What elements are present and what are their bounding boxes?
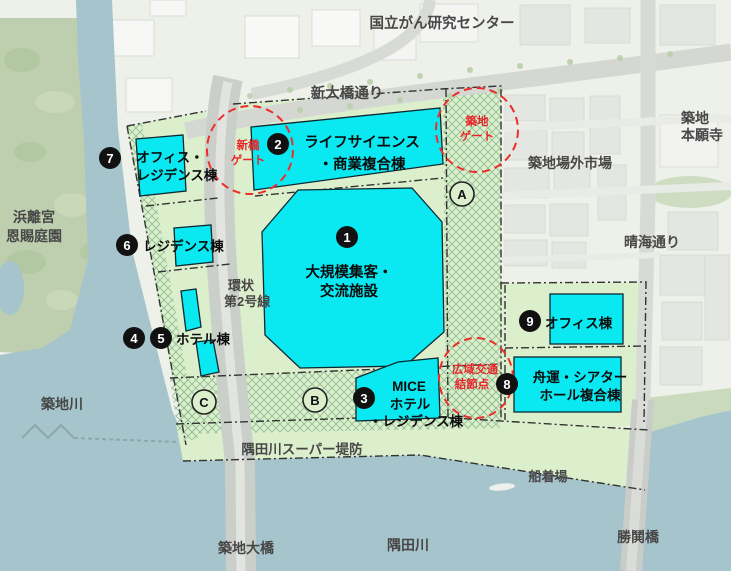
svg-text:2: 2: [274, 137, 281, 152]
label-honganji-1: 築地: [680, 110, 709, 126]
marker-5: 5: [150, 327, 172, 349]
building-45-label: ホテル棟: [176, 331, 230, 347]
building-6-label: レジデンス棟: [143, 238, 224, 254]
building-3-label-2: ホテル: [390, 397, 431, 412]
gate-shimbashi-label-1: 新橋: [237, 138, 260, 152]
site-plan-map: 国立がん研究センター 新大橋通り 築地 本願寺 築地場外市場 晴海通り 浜離宮 …: [0, 0, 731, 571]
label-hamarikyu-1: 浜離宮: [13, 209, 55, 225]
building-1-label-1: 大規模集客・: [306, 263, 393, 281]
label-honganji-2: 本願寺: [681, 127, 723, 143]
building-3-label-1: MICE: [392, 379, 426, 394]
svg-text:5: 5: [157, 331, 164, 346]
building-9-label: オフィス棟: [545, 315, 613, 331]
svg-text:A: A: [457, 187, 467, 202]
road-label-kanjo2-2: 第2号線: [224, 294, 271, 309]
label-hamarikyu-2: 恩賜庭園: [6, 228, 62, 244]
water-label-sumida-river: 隅田川: [387, 537, 429, 553]
svg-text:4: 4: [130, 331, 138, 346]
label-jogai-market: 築地場外市場: [527, 155, 612, 171]
marker-4: 4: [123, 327, 145, 349]
marker-6: 6: [116, 234, 138, 256]
marker-8: 8: [496, 373, 518, 395]
marker-2: 2: [267, 133, 289, 155]
svg-text:C: C: [199, 395, 209, 410]
building-7-label-1: オフィス・: [136, 150, 203, 165]
building-2-label-2: ・商業複合棟: [319, 155, 406, 173]
gate-hub-label-1: 広域交通: [452, 362, 498, 376]
marker-1: 1: [336, 226, 358, 248]
svg-text:B: B: [310, 393, 319, 408]
building-2-label-1: ライフサイエンス: [304, 134, 420, 151]
building-7-label-2: レジデンス棟: [137, 167, 218, 183]
gate-hub-label-2: 結節点: [455, 377, 490, 391]
svg-text:8: 8: [503, 377, 510, 392]
label-pier: 船着場: [528, 469, 567, 484]
zone-badge-b: B: [303, 388, 327, 412]
svg-text:3: 3: [360, 391, 367, 406]
svg-text:9: 9: [526, 314, 533, 329]
svg-text:1: 1: [343, 230, 350, 245]
marker-7: 7: [99, 147, 121, 169]
road-label-shin-ohashi: 新大橋通り: [311, 84, 384, 102]
road-label-harumi: 晴海通り: [624, 234, 680, 250]
building-3-label-3: ・レジデンス棟: [369, 413, 464, 429]
building-8-label-2: ホール複合棟: [540, 387, 621, 403]
svg-text:7: 7: [106, 151, 113, 166]
building-8-label-1: 舟運・シアター: [533, 369, 628, 385]
gate-shimbashi-label-2: ゲート: [231, 153, 266, 167]
building-1-label-2: 交流施設: [320, 282, 378, 300]
marker-9: 9: [519, 310, 541, 332]
label-cancer-center: 国立がん研究センター: [370, 14, 515, 32]
building-7-shape: [136, 135, 186, 196]
svg-text:6: 6: [123, 238, 130, 253]
water-label-tsukiji-river: 築地川: [40, 396, 83, 412]
label-kachidoki-bridge: 勝鬨橋: [617, 529, 660, 545]
zone-badge-a: A: [450, 182, 474, 206]
gate-tsukiji-label-2: ゲート: [460, 129, 495, 143]
label-tsukiji-bridge: 築地大橋: [217, 540, 275, 556]
zone-badge-c: C: [192, 390, 216, 414]
marker-3: 3: [353, 387, 375, 409]
gate-tsukiji-label-1: 築地: [465, 114, 489, 128]
road-label-kanjo2-1: 環状: [228, 278, 255, 293]
label-super-levee: 隅田川スーパー堤防: [241, 441, 363, 457]
